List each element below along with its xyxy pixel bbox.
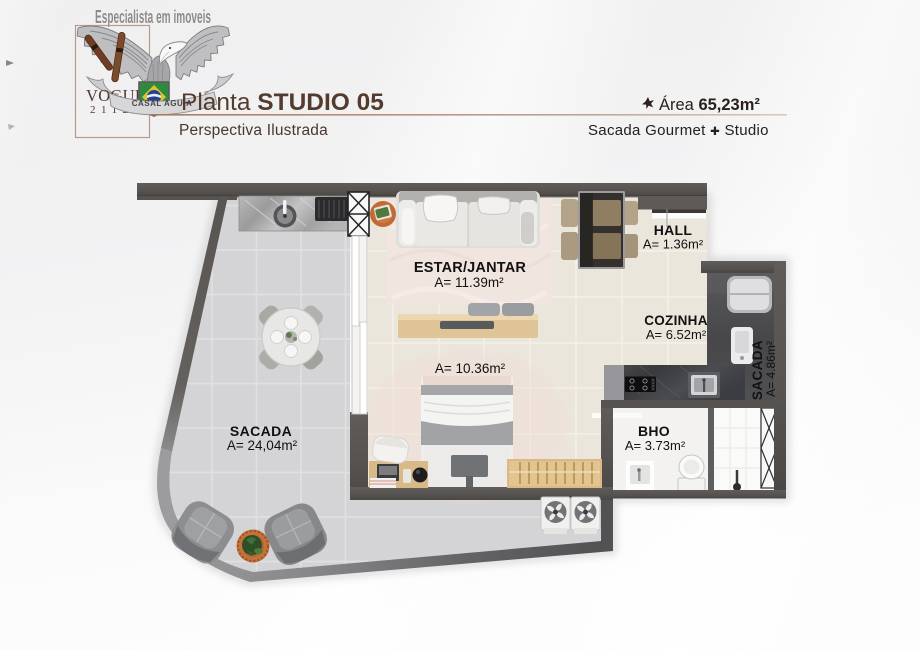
svg-text:BHO: BHO <box>638 423 670 439</box>
svg-text:A= 6.52m²: A= 6.52m² <box>646 327 707 342</box>
svg-text:ESTAR/JANTAR: ESTAR/JANTAR <box>414 260 527 276</box>
svg-text:Perspectiva Ilustrada: Perspectiva Ilustrada <box>179 122 328 139</box>
svg-text:A= 1.36m²: A= 1.36m² <box>643 237 704 252</box>
svg-text:SACADA: SACADA <box>750 340 765 400</box>
svg-text:Sacada Gourmet ✚ Studio: Sacada Gourmet ✚ Studio <box>588 122 769 139</box>
svg-text:SACADA: SACADA <box>230 423 292 439</box>
svg-text:Planta STUDIO 05: Planta STUDIO 05 <box>181 89 384 116</box>
svg-text:A= 11.39m²: A= 11.39m² <box>434 275 504 290</box>
svg-text:A= 4.86m²: A= 4.86m² <box>764 341 778 397</box>
svg-text:COZINHA: COZINHA <box>644 313 708 328</box>
svg-text:Área 65,23m²: Área 65,23m² <box>659 95 760 114</box>
svg-text:A= 10.36m²: A= 10.36m² <box>435 361 506 376</box>
svg-text:A= 3.73m²: A= 3.73m² <box>625 438 686 453</box>
svg-text:Especialista em imoveis: Especialista em imoveis <box>95 7 211 27</box>
svg-text:A= 24,04m²: A= 24,04m² <box>227 438 298 453</box>
